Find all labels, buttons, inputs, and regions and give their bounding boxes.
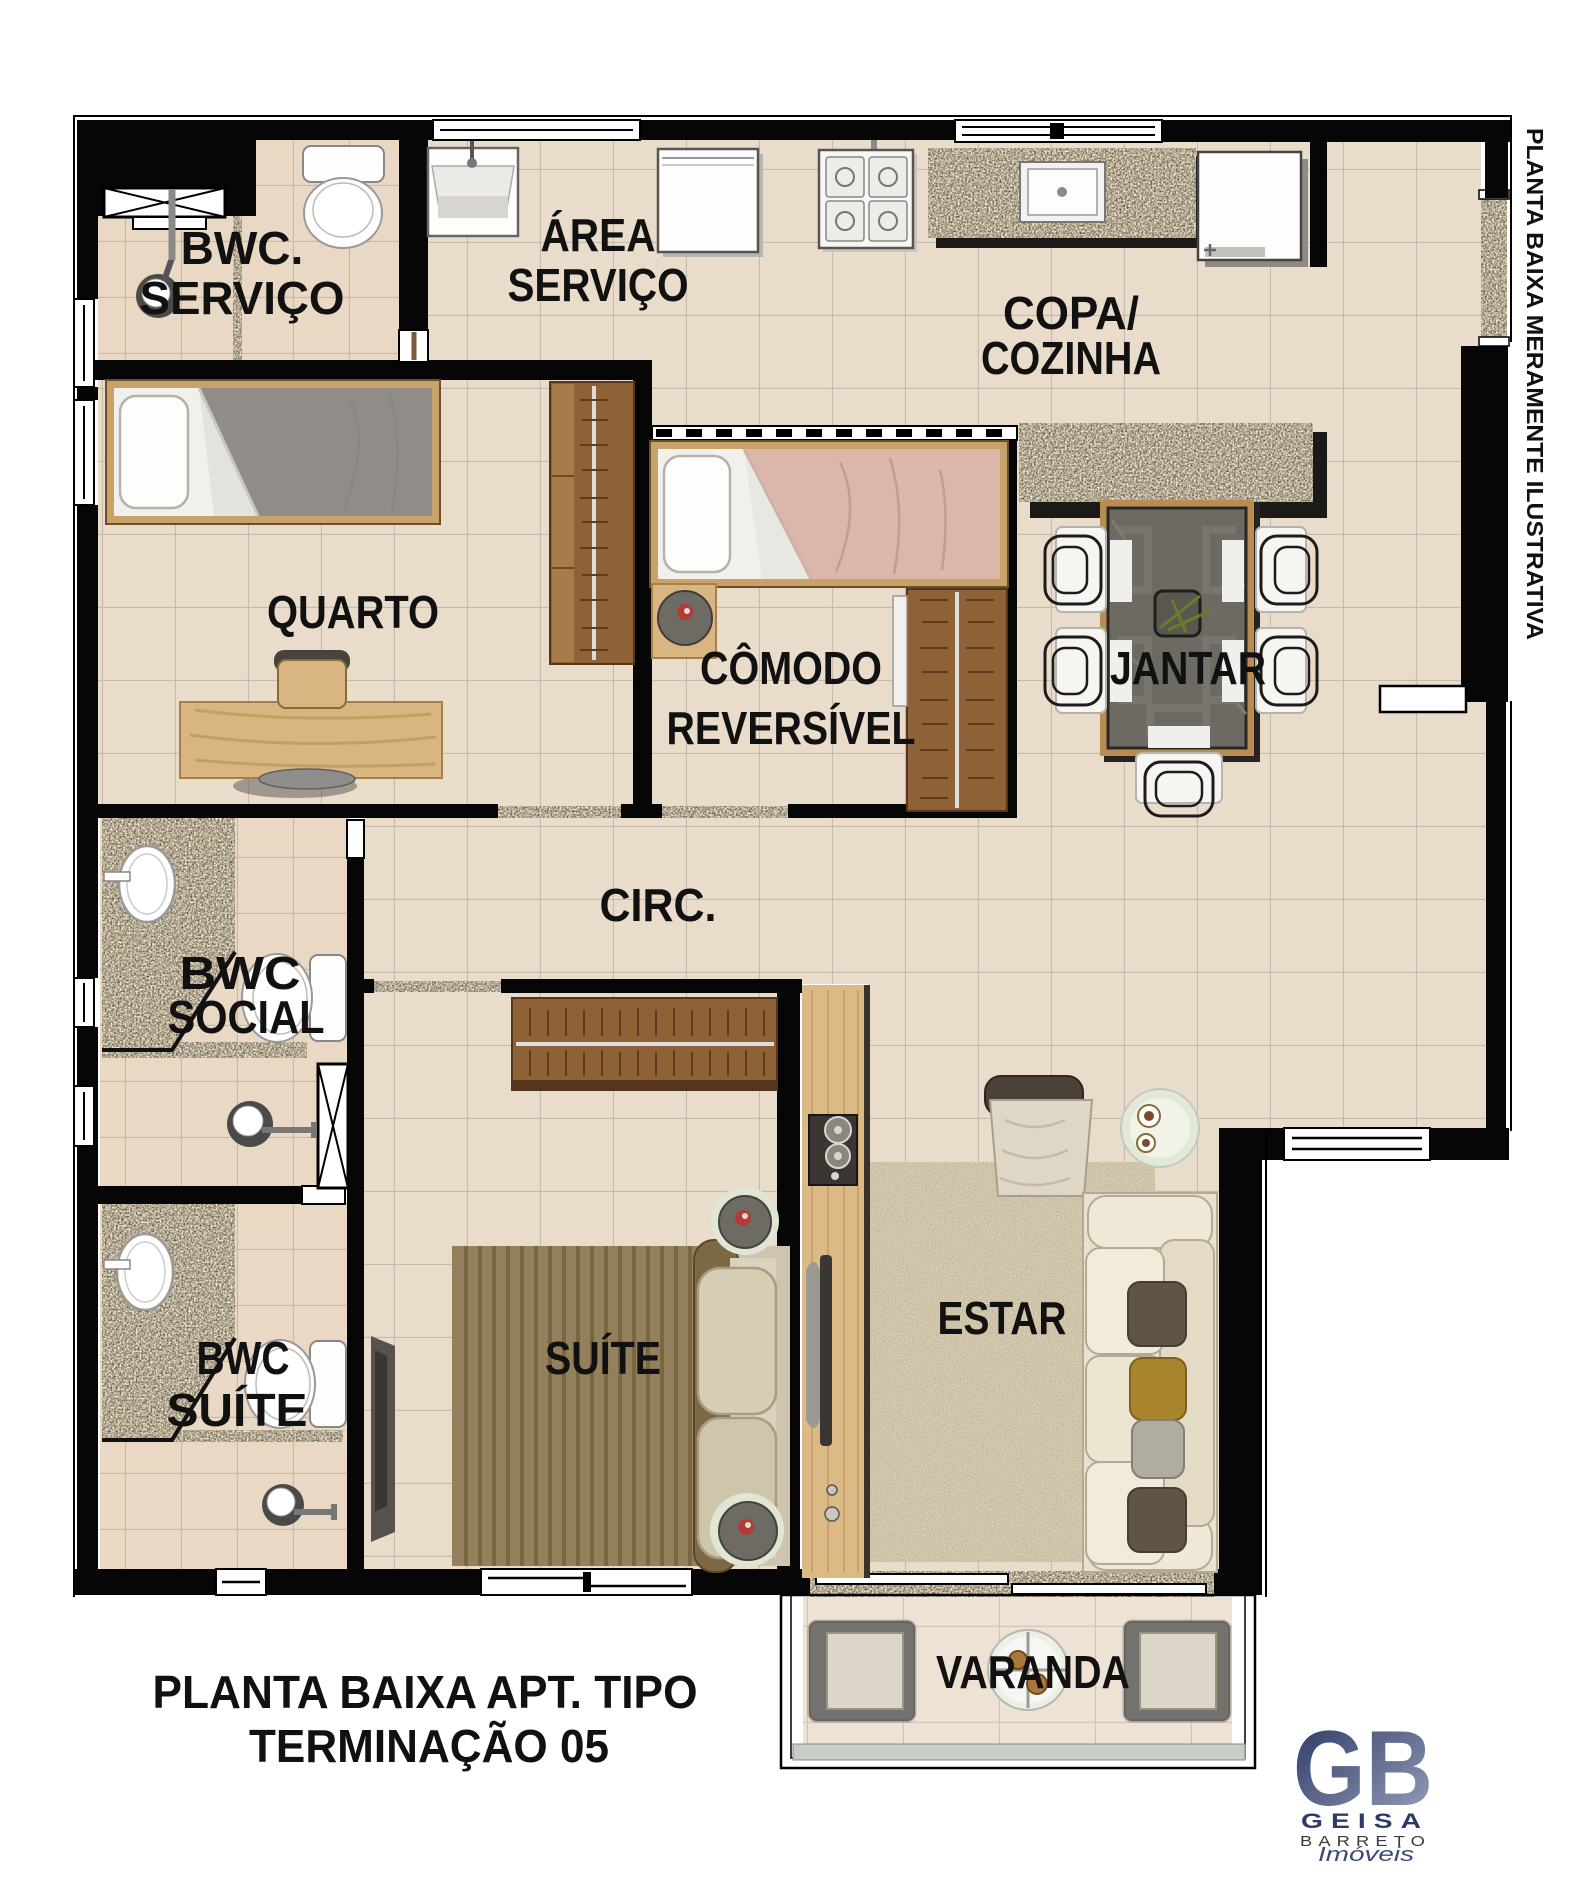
svg-text:QUARTO: QUARTO <box>267 586 439 638</box>
svg-text:SERVIÇO: SERVIÇO <box>508 259 689 311</box>
svg-text:TERMINAÇÃO 05: TERMINAÇÃO 05 <box>249 1720 609 1772</box>
svg-text:SERVIÇO: SERVIÇO <box>140 272 345 324</box>
svg-text:SUÍTE: SUÍTE <box>167 1384 308 1436</box>
svg-text:PLANTA BAIXA MERAMENTE ILUSTRA: PLANTA BAIXA MERAMENTE ILUSTRATIVA <box>1522 128 1548 640</box>
svg-text:PLANTA BAIXA APT. TIPO: PLANTA BAIXA APT. TIPO <box>153 1666 698 1718</box>
svg-text:JANTAR: JANTAR <box>1110 642 1266 694</box>
svg-text:CIRC.: CIRC. <box>600 879 717 931</box>
svg-text:Imóveis: Imóveis <box>1318 1844 1414 1866</box>
svg-text:COZINHA: COZINHA <box>981 332 1161 384</box>
svg-text:GEISA: GEISA <box>1301 1810 1429 1833</box>
svg-text:REVERSÍVEL: REVERSÍVEL <box>667 702 916 754</box>
svg-text:ÁREA: ÁREA <box>541 209 656 261</box>
svg-text:VARANDA: VARANDA <box>936 1646 1130 1698</box>
svg-text:BWC: BWC <box>197 1332 290 1384</box>
svg-text:CÔMODO: CÔMODO <box>700 642 882 694</box>
svg-text:SUÍTE: SUÍTE <box>545 1332 661 1384</box>
svg-text:SOCIAL: SOCIAL <box>168 991 325 1043</box>
svg-text:BWC.: BWC. <box>181 222 304 274</box>
svg-text:ESTAR: ESTAR <box>938 1292 1067 1344</box>
